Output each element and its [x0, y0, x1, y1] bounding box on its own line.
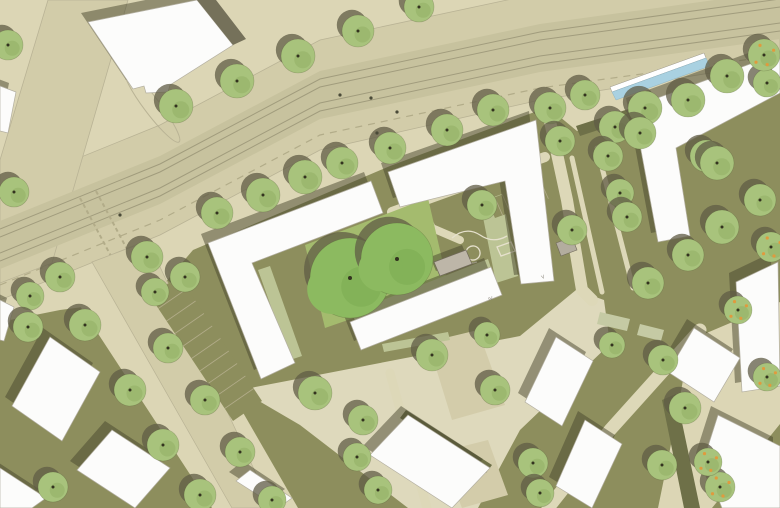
fruit-dot — [727, 481, 730, 484]
tree-foliage-shade — [259, 190, 276, 207]
tree-foliage-shade — [389, 249, 425, 285]
tree-trunk — [377, 489, 380, 492]
tree-trunk — [262, 194, 265, 197]
tree-foliage-shade — [530, 459, 545, 474]
pedestrian — [369, 96, 372, 99]
tree-foliage-shade — [81, 321, 97, 337]
fruit-dot — [745, 304, 748, 307]
tree-trunk — [539, 492, 542, 495]
tree-foliage-shade — [202, 396, 217, 411]
pedestrian — [375, 131, 378, 134]
fruit-dot — [711, 492, 714, 495]
tree-foliage-shade — [718, 222, 735, 239]
tree-trunk — [236, 80, 239, 83]
tree-foliage-shade — [294, 51, 311, 68]
fruit-dot — [762, 252, 765, 255]
tree-foliage-shade — [375, 486, 389, 500]
tree-foliage-shade — [416, 3, 431, 18]
tree-foliage-shade — [569, 226, 584, 241]
tree-foliage-shade — [659, 461, 674, 476]
tree-trunk — [341, 162, 344, 165]
tree-trunk — [184, 276, 187, 279]
tree-trunk — [719, 486, 722, 489]
tree-foliage-shade — [537, 489, 551, 503]
tree-trunk — [726, 75, 729, 78]
tree-foliage-shade — [354, 27, 370, 43]
tree-trunk — [167, 347, 170, 350]
tree-trunk — [27, 326, 30, 329]
tree-trunk — [52, 486, 55, 489]
tree-trunk — [314, 392, 317, 395]
tree-foliage-shade — [557, 137, 572, 152]
tree-trunk — [766, 376, 769, 379]
tree-trunk — [7, 44, 10, 47]
tree-trunk — [639, 132, 642, 135]
tree-foliage-shade — [624, 213, 639, 228]
tree-foliage-shade — [636, 129, 652, 145]
tree-trunk — [271, 499, 274, 502]
tree-trunk — [418, 6, 421, 9]
tree-foliage-shade — [660, 356, 675, 371]
tree-foliage-shade — [354, 453, 368, 467]
tree-foliage-shade — [50, 483, 65, 498]
tree-trunk — [84, 324, 87, 327]
fruit-dot — [715, 456, 718, 459]
tree-foliage-shade — [764, 79, 778, 93]
tree-trunk — [494, 389, 497, 392]
tree-trunk — [431, 354, 434, 357]
tree-foliage-shade — [582, 91, 597, 106]
tree-foliage-shade — [196, 491, 212, 507]
tree-trunk — [348, 276, 352, 280]
tree-trunk — [59, 276, 62, 279]
fruit-dot — [768, 384, 771, 387]
tree-foliage-shade — [165, 344, 180, 359]
tree-foliage-shade — [684, 251, 700, 267]
fruit-dot — [766, 63, 769, 66]
tree-foliage-shade — [5, 41, 20, 56]
tree-foliage-shade — [182, 273, 197, 288]
tree-trunk — [662, 359, 665, 362]
pedestrian — [395, 110, 398, 113]
tree-foliage-shade — [143, 253, 159, 269]
tree-foliage-shade — [311, 388, 328, 405]
tree-trunk — [304, 176, 307, 179]
tree-trunk — [611, 344, 614, 347]
tree-foliage-shade — [126, 386, 142, 402]
tree-trunk — [716, 162, 719, 165]
fruit-dot — [721, 494, 724, 497]
tree-foliage-shade — [484, 331, 497, 344]
tree-trunk — [481, 204, 484, 207]
tree-foliage-shade — [172, 101, 189, 118]
tree-trunk — [446, 129, 449, 132]
tree-foliage-shade — [301, 172, 318, 189]
tree-trunk — [356, 456, 359, 459]
tree-foliage-shade — [57, 273, 72, 288]
tree-foliage-shade — [428, 351, 444, 367]
fruit-dot — [715, 476, 718, 479]
fruit-dot — [774, 371, 777, 374]
tree-trunk — [146, 256, 149, 259]
tree-trunk — [707, 461, 710, 464]
fruit-dot — [709, 469, 712, 472]
tree-foliage-shade — [152, 288, 166, 302]
tree-trunk — [389, 147, 392, 150]
tree-trunk — [687, 254, 690, 257]
fruit-dot — [733, 300, 736, 303]
tree-trunk — [13, 191, 16, 194]
tree-trunk — [571, 229, 574, 232]
tree-foliage-shade — [11, 188, 26, 203]
tree-trunk — [661, 464, 664, 467]
tree-trunk — [297, 55, 300, 58]
tree-trunk — [687, 99, 690, 102]
tree-foliage-shade — [723, 71, 740, 88]
tree-foliage-shade — [443, 126, 459, 142]
tree-trunk — [357, 30, 360, 33]
tree-foliage-shade — [546, 104, 562, 120]
tree-trunk — [532, 462, 535, 465]
tree-trunk — [395, 257, 399, 261]
tree-foliage-shade — [756, 196, 772, 212]
site-plan-screenshot: IVV — [0, 0, 780, 508]
tree-trunk — [486, 334, 489, 337]
tree-trunk — [216, 212, 219, 215]
tree-trunk — [204, 399, 207, 402]
tree-trunk — [770, 246, 773, 249]
tree-trunk — [647, 282, 650, 285]
tree-foliage-shade — [644, 279, 660, 295]
tree-trunk — [763, 54, 766, 57]
pedestrian — [338, 93, 341, 96]
tree-foliage-shade — [159, 441, 175, 457]
tree-trunk — [584, 94, 587, 97]
fruit-dot — [754, 61, 757, 64]
fruit-dot — [772, 49, 775, 52]
tree-trunk — [239, 451, 242, 454]
pedestrian — [118, 213, 121, 216]
tree-trunk — [737, 309, 740, 312]
tree-trunk — [619, 192, 622, 195]
tree-foliage-shade — [237, 448, 252, 463]
tree-trunk — [607, 155, 610, 158]
tree-foliage-shade — [27, 292, 41, 306]
tree-trunk — [175, 105, 178, 108]
tree-foliage-shade — [489, 106, 505, 122]
tree-foliage-shade — [479, 201, 494, 216]
fruit-dot — [703, 452, 706, 455]
fruit-dot — [772, 254, 775, 257]
tree-foliage-shade — [233, 76, 250, 93]
tree-trunk — [759, 199, 762, 202]
tree-trunk — [492, 109, 495, 112]
tree-trunk — [29, 295, 32, 298]
tree-foliage-shade — [338, 159, 354, 175]
tree-trunk — [721, 226, 724, 229]
tree-trunk — [362, 419, 365, 422]
fruit-dot — [729, 315, 732, 318]
tree-foliage-shade — [605, 152, 620, 167]
fruit-dot — [758, 382, 761, 385]
tree-foliage-shade — [360, 416, 375, 431]
tree-foliage-shade — [713, 158, 730, 175]
tree-trunk — [644, 107, 647, 110]
tree-trunk — [129, 389, 132, 392]
tree-foliage-shade — [684, 95, 701, 112]
fruit-dot — [762, 367, 765, 370]
fruit-dot — [758, 44, 761, 47]
tree-foliage-shade — [609, 341, 622, 354]
tree-trunk — [154, 291, 157, 294]
tree-foliage-shade — [25, 323, 40, 338]
tree-trunk — [766, 82, 769, 85]
tree-trunk — [614, 126, 617, 129]
tree-foliage-shade — [386, 144, 402, 160]
fruit-dot — [699, 467, 702, 470]
tree-trunk — [626, 216, 629, 219]
tree-foliage-shade — [681, 404, 697, 420]
tree-foliage-shade — [492, 386, 507, 401]
site-plan-map: IVV — [0, 0, 780, 508]
tree-foliage-shade — [213, 209, 229, 225]
tree-trunk — [162, 444, 165, 447]
tree-trunk — [559, 140, 562, 143]
tree-trunk — [684, 407, 687, 410]
tree-trunk — [199, 494, 202, 497]
fruit-dot — [739, 317, 742, 320]
tree-trunk — [549, 107, 552, 110]
fruit-dot — [766, 236, 769, 239]
